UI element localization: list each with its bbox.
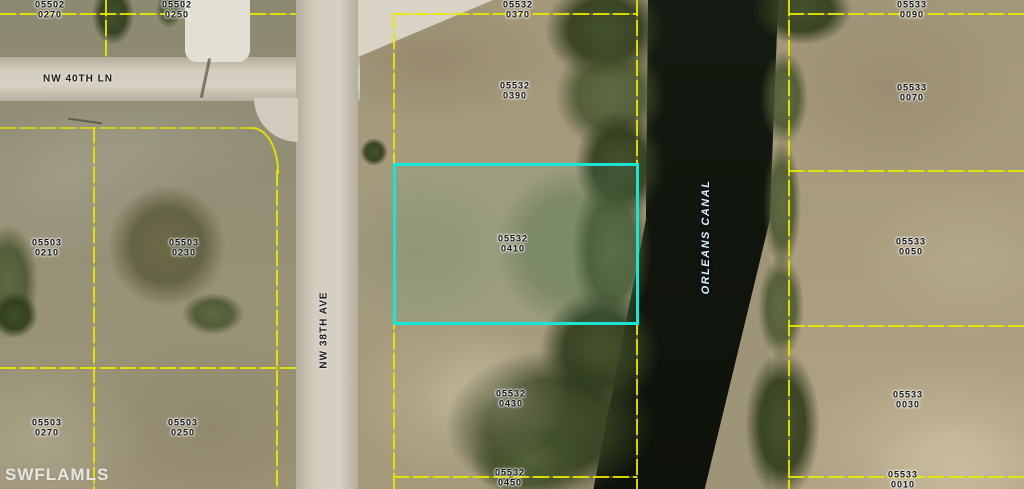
parcel-boundary-line [788, 170, 1024, 172]
watermark: SWFLAMLS [5, 465, 109, 485]
parcel-boundary-line [0, 13, 183, 15]
parcel-label: 055020270 [35, 1, 65, 20]
parcel-boundary-line [93, 127, 95, 489]
street-label-nw-40th-ln: NW 40TH LN [43, 74, 113, 85]
parcel-label: 055320370 [503, 1, 533, 20]
parcel-boundary-line [0, 127, 250, 129]
parcel-label: 055020250 [162, 1, 192, 20]
parcel-label: 055320390 [500, 82, 530, 101]
parcel-label: 055030270 [32, 419, 62, 438]
parcel-boundary-line [250, 13, 296, 15]
parcel-label: 055320430 [496, 390, 526, 409]
concrete-driveway [185, 0, 250, 62]
parcel-boundary-line [788, 325, 1024, 327]
parcel-label: 055330010 [888, 471, 918, 489]
parcel-boundary-line [0, 367, 296, 369]
parcel-label: 055030250 [168, 419, 198, 438]
parcel-boundary-line [276, 170, 278, 489]
aerial-parcel-map[interactable]: 055020270 055020250 055320370 055330090 … [0, 0, 1024, 489]
canal-label: ORLEANS CANAL [700, 180, 712, 295]
parcel-boundary-line [636, 319, 638, 489]
vegetation-patch [745, 350, 820, 489]
parcel-label: 055330030 [893, 391, 923, 410]
vegetation-patch [760, 50, 808, 145]
parcel-label: 055030230 [169, 239, 199, 258]
vegetation-patch [182, 293, 244, 335]
parcel-label: 055330070 [897, 84, 927, 103]
parcel-label: 055330090 [897, 1, 927, 20]
vegetation-patch [763, 140, 801, 270]
road-nw-38th-ave [296, 0, 358, 489]
street-label-nw-38th-ave: NW 38TH AVE [319, 291, 330, 368]
parcel-boundary-line [788, 0, 790, 489]
parcel-label-highlighted: 055320410 [498, 235, 528, 254]
vegetation-patch [360, 138, 388, 166]
vegetation-patch [758, 255, 804, 360]
parcel-boundary-line [636, 0, 638, 163]
parcel-label: 055320450 [495, 469, 525, 488]
vegetation-patch [108, 185, 226, 307]
parcel-label: 055330050 [896, 238, 926, 257]
parcel-boundary-line [105, 0, 107, 57]
parcel-label: 055030210 [32, 239, 62, 258]
